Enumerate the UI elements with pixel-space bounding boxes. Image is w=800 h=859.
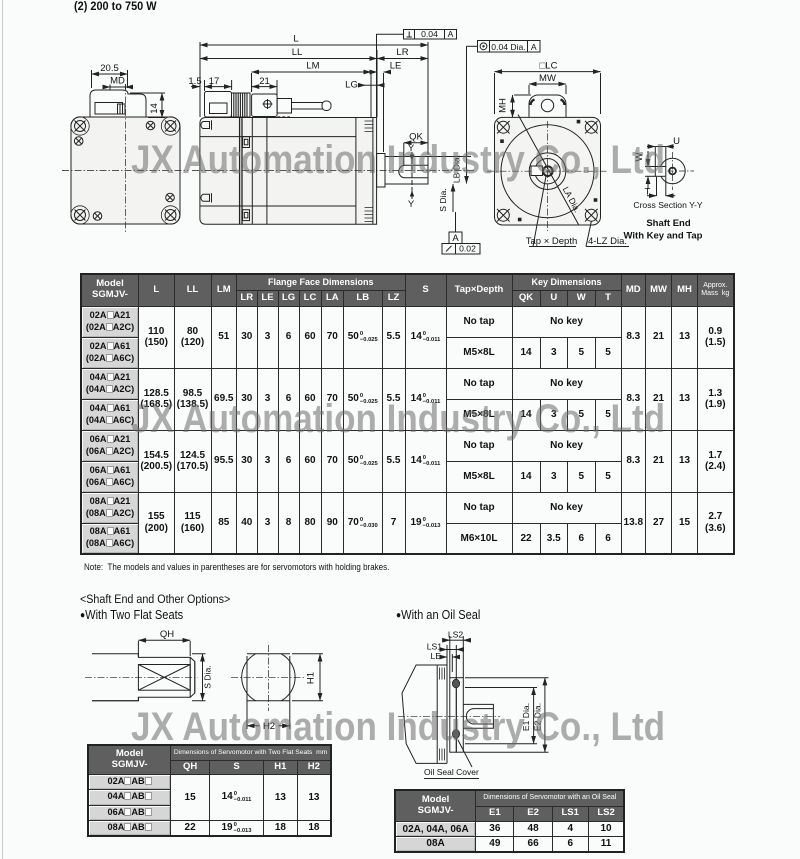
svg-text:MH: MH — [498, 98, 509, 113]
svg-text:H1: H1 — [306, 672, 317, 684]
svg-text:□LC: □LC — [540, 61, 558, 72]
svg-text:0.02: 0.02 — [459, 244, 476, 254]
svg-text:Tap × Depth: Tap × Depth — [526, 236, 578, 247]
svg-text:A: A — [452, 233, 459, 244]
svg-text:With Key and Tap: With Key and Tap — [624, 231, 703, 242]
svg-text:21: 21 — [259, 76, 270, 87]
svg-text:LG: LG — [345, 80, 358, 91]
svg-text:0.04 Dia.: 0.04 Dia. — [491, 42, 525, 52]
svg-text:0.04: 0.04 — [421, 29, 438, 39]
svg-text:LS1: LS1 — [427, 642, 443, 652]
svg-text:S Dia.: S Dia. — [438, 188, 448, 211]
svg-text:Y: Y — [408, 199, 415, 210]
svg-text:LL: LL — [292, 47, 303, 58]
svg-text:4-LZ Dia.: 4-LZ Dia. — [588, 236, 627, 247]
svg-text:20.5: 20.5 — [100, 63, 119, 74]
svg-text:1.5: 1.5 — [188, 76, 201, 87]
svg-text:MD: MD — [110, 76, 125, 87]
svg-text:A: A — [448, 29, 454, 39]
svg-text:S Dia.: S Dia. — [203, 665, 213, 688]
svg-text:Shaft End: Shaft End — [646, 218, 691, 229]
svg-text:L: L — [293, 34, 298, 45]
svg-text:A: A — [531, 42, 537, 52]
svg-text:14: 14 — [149, 103, 160, 114]
svg-text:LS2: LS2 — [448, 630, 464, 640]
svg-text:17: 17 — [209, 76, 220, 87]
svg-text:QH: QH — [160, 629, 174, 640]
svg-text:MW: MW — [539, 73, 556, 84]
svg-text:LE: LE — [390, 61, 402, 72]
svg-text:LR: LR — [396, 47, 408, 58]
svg-text:U: U — [673, 136, 680, 147]
svg-text:LE: LE — [431, 651, 442, 661]
svg-text:LM: LM — [306, 61, 319, 72]
svg-text:Cross Section Y-Y: Cross Section Y-Y — [633, 200, 703, 210]
